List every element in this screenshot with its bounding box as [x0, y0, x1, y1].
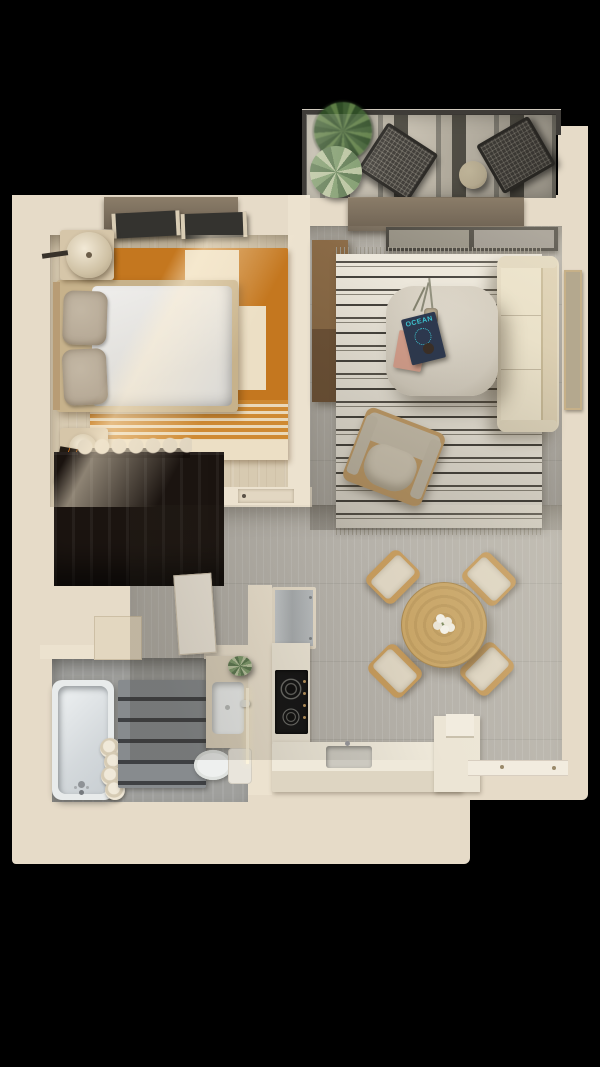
- bedroom-window-right: [181, 212, 248, 239]
- wavy-bench: [76, 436, 192, 457]
- bed-duvet: [92, 286, 232, 406]
- vanity-basin: [212, 682, 244, 734]
- balcony-side-table: [459, 161, 487, 189]
- bathroom-plant: [228, 656, 252, 676]
- bed-pillow-bottom: [62, 348, 109, 406]
- flower-centerpiece: [436, 614, 445, 623]
- fridge-hinge-bottom: [309, 637, 312, 640]
- succulent-plant: [310, 146, 362, 198]
- sink-faucet: [345, 741, 350, 746]
- sliding-door-pane-left: [389, 230, 469, 248]
- balcony-railing-right: [556, 109, 561, 135]
- entry-hardware-1: [500, 765, 504, 769]
- wardrobe: [54, 452, 224, 586]
- wall-art: [564, 270, 582, 410]
- hall-recessed-cabinet: [94, 616, 142, 660]
- entry-hardware-2: [552, 766, 556, 770]
- bathroom-door-leaf: [173, 573, 216, 655]
- basin-drain: [225, 705, 230, 710]
- headboard: [53, 282, 60, 410]
- sofa-seat-cushions: [501, 262, 541, 426]
- sliding-door-pane-right: [474, 230, 554, 248]
- kitchen-island-step: [446, 714, 474, 736]
- bed-pillow-top: [62, 290, 108, 346]
- bedroom-door-handle: [242, 494, 246, 498]
- living-rug-fringe-bottom: [336, 527, 542, 535]
- dining-table: [401, 582, 487, 668]
- sofa-back-cushion: [541, 260, 557, 428]
- bedroom-east-wall: [288, 195, 310, 507]
- fridge: [272, 587, 316, 649]
- lamp-finial: [86, 252, 92, 258]
- cooktop: [275, 670, 308, 734]
- tub-faucet: [78, 781, 85, 788]
- slab-balcony-side: [558, 126, 588, 198]
- sofa-armrest-top: [499, 256, 557, 268]
- toilet-bowl: [194, 750, 232, 780]
- bath-mat: [118, 680, 206, 788]
- sofa-armrest-bottom: [499, 420, 557, 432]
- cooktop-knobs: [303, 680, 306, 683]
- balcony-door-lintel: [348, 197, 524, 231]
- burner-large: [280, 678, 302, 700]
- bedroom-door-leaf: [238, 489, 294, 503]
- kitchen-sink: [326, 746, 372, 768]
- dark-cup: [423, 343, 434, 354]
- table-lamp-north: [66, 232, 112, 278]
- bedroom-window-left: [111, 210, 180, 239]
- floor-plan-canvas: OCEAN: [0, 0, 600, 1067]
- balcony-railing-left: [302, 109, 307, 198]
- burner-small: [282, 708, 300, 726]
- led-light-strip: [246, 688, 249, 764]
- sofa: [497, 256, 559, 432]
- fridge-hinge-top: [309, 596, 312, 599]
